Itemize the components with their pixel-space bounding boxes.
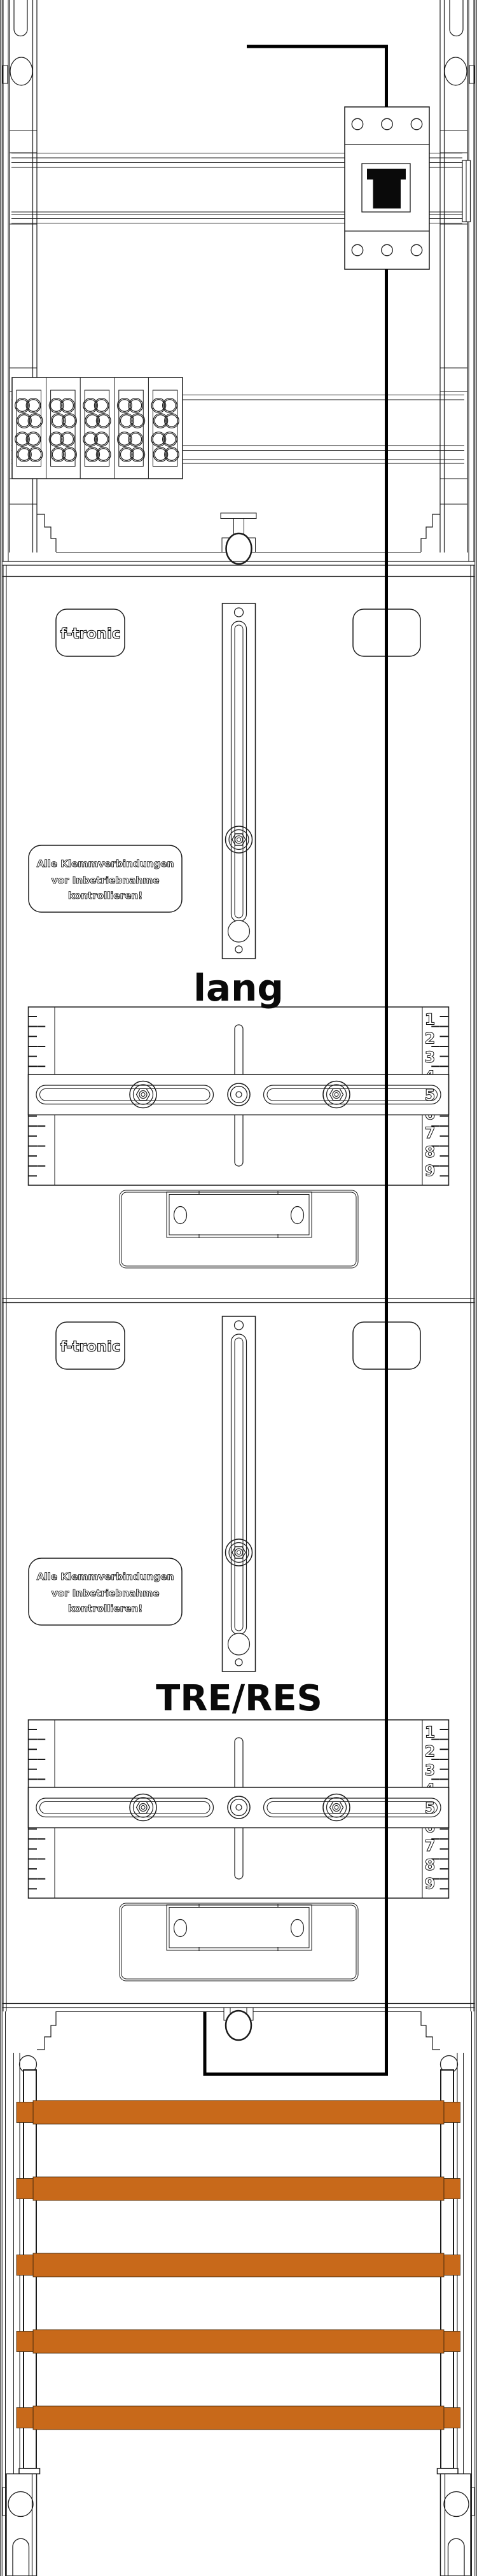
cabinet-svg: f-tronic Alle Klemmverbindungen vor Inbe… xyxy=(0,0,477,2576)
meter-cabinet-drawing: f-tronic Alle Klemmverbindungen vor Inbe… xyxy=(0,0,477,2576)
field-1-label: lang xyxy=(193,966,284,1010)
main-switch-device xyxy=(345,107,429,269)
right-bar-foot xyxy=(438,2468,459,2474)
din-rail-end-cap xyxy=(462,160,471,222)
bottom-left-profile-rail xyxy=(6,2474,37,2576)
field-2-label: TRE/RES xyxy=(156,1678,322,1719)
busbar-3 xyxy=(17,2253,460,2277)
busbar-5 xyxy=(17,2406,460,2430)
busbar-4 xyxy=(17,2330,460,2353)
busbar-1 xyxy=(17,2101,460,2124)
busbar-2 xyxy=(17,2177,460,2200)
left-bar-foot xyxy=(19,2468,40,2474)
bottom-right-profile-rail xyxy=(441,2474,471,2576)
terminal-block xyxy=(12,377,183,479)
